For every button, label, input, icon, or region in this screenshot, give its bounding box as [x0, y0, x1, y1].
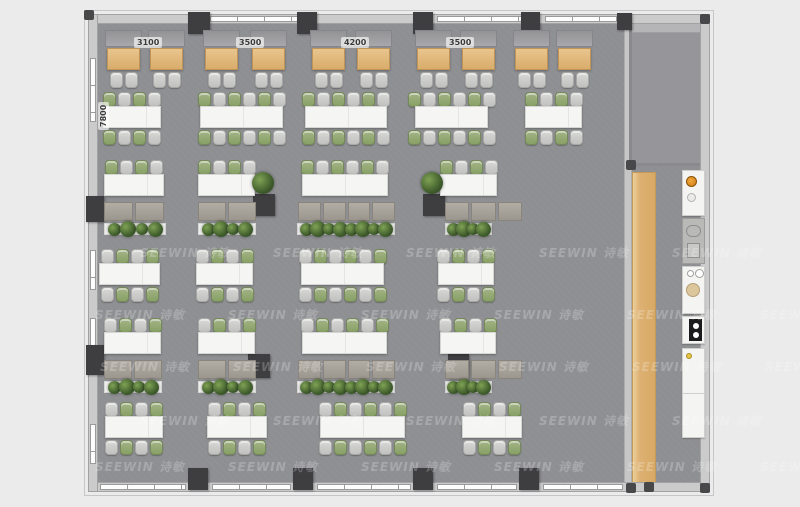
- corner-dot: [700, 483, 710, 493]
- chair: [120, 440, 133, 455]
- chair: [131, 287, 144, 302]
- chair: [103, 130, 116, 145]
- booth-table: [558, 48, 591, 70]
- chair: [243, 160, 256, 175]
- pillar: [253, 194, 275, 216]
- bar-counter: [632, 172, 656, 486]
- watermark: SEEWIN 诗敏: [95, 306, 185, 323]
- sofa-bench: [323, 360, 346, 379]
- chair: [470, 160, 483, 175]
- chair: [438, 92, 451, 107]
- booth-table: [357, 48, 390, 70]
- chair: [525, 92, 538, 107]
- chair: [394, 440, 407, 455]
- window: [437, 484, 517, 490]
- watermark: SEEWIN 诗敏: [672, 412, 762, 429]
- chair: [364, 440, 377, 455]
- watermark: SEEWIN 诗敏: [361, 306, 451, 323]
- dining-table: [440, 332, 496, 354]
- chair: [329, 287, 342, 302]
- chair: [455, 160, 468, 175]
- chair: [331, 160, 344, 175]
- pillar: [86, 196, 104, 222]
- pillar: [188, 468, 208, 490]
- watermark: SEEWIN 诗敏: [494, 458, 584, 475]
- chair: [468, 130, 481, 145]
- dining-table: [302, 332, 387, 354]
- chair: [468, 92, 481, 107]
- chair: [377, 92, 390, 107]
- sofa-bench: [348, 202, 371, 221]
- watermark: SEEWIN 诗敏: [233, 358, 323, 375]
- window: [210, 16, 298, 22]
- chair: [347, 92, 360, 107]
- dining-table: [104, 332, 161, 354]
- dining-table: [99, 263, 160, 285]
- watermark: SEEWIN 诗敏: [499, 358, 589, 375]
- chair: [483, 92, 496, 107]
- chair: [302, 130, 315, 145]
- plant-icon: [148, 222, 163, 237]
- sofa-bench: [498, 202, 522, 221]
- chair: [493, 440, 506, 455]
- watermark: SEEWIN 诗敏: [273, 244, 363, 261]
- watermark: SEEWIN 诗敏: [406, 412, 496, 429]
- corner-dot: [84, 10, 94, 20]
- cooktop-appliance: [682, 170, 705, 216]
- chair: [377, 130, 390, 145]
- window: [545, 16, 617, 22]
- plant-icon: [378, 380, 393, 395]
- chair: [374, 249, 387, 264]
- chair: [314, 287, 327, 302]
- chair: [299, 287, 312, 302]
- chair: [301, 160, 314, 175]
- chair: [302, 92, 315, 107]
- dining-table: [440, 174, 497, 196]
- booth-table: [150, 48, 183, 70]
- chair: [374, 287, 387, 302]
- chair: [120, 402, 133, 417]
- chair: [344, 287, 357, 302]
- chair: [270, 72, 283, 88]
- watermark: SEEWIN 诗敏: [406, 244, 496, 261]
- watermark: SEEWIN 诗敏: [627, 306, 717, 323]
- watermark: SEEWIN 诗敏: [140, 412, 230, 429]
- chair: [213, 160, 226, 175]
- window: [100, 484, 186, 490]
- booth-table: [205, 48, 238, 70]
- plant-icon: [144, 380, 159, 395]
- chair: [465, 72, 478, 88]
- chair: [420, 72, 433, 88]
- chair: [364, 402, 377, 417]
- pillar: [617, 13, 632, 30]
- chair: [518, 72, 531, 88]
- chair: [480, 72, 493, 88]
- watermark: SEEWIN 诗敏: [539, 244, 629, 261]
- watermark: SEEWIN 诗敏: [765, 358, 800, 375]
- chair: [376, 160, 389, 175]
- chair: [253, 402, 266, 417]
- chair: [362, 130, 375, 145]
- dining-table: [415, 106, 488, 128]
- chair: [208, 440, 221, 455]
- chair: [198, 92, 211, 107]
- chair: [273, 130, 286, 145]
- chair: [273, 92, 286, 107]
- sofa-bench: [445, 202, 469, 221]
- watermark: SEEWIN 诗敏: [760, 306, 800, 323]
- dining-table: [301, 263, 384, 285]
- chair: [135, 160, 148, 175]
- watermark: SEEWIN 诗敏: [228, 458, 318, 475]
- chair: [437, 287, 450, 302]
- watermark: SEEWIN 诗敏: [632, 358, 722, 375]
- chair: [228, 160, 241, 175]
- watermark: SEEWIN 诗敏: [100, 358, 190, 375]
- chair: [243, 130, 256, 145]
- plant-icon: [238, 222, 253, 237]
- chair: [148, 92, 161, 107]
- window: [317, 484, 411, 490]
- watermark: SEEWIN 诗敏: [366, 358, 456, 375]
- watermark: SEEWIN 诗敏: [361, 458, 451, 475]
- dining-table: [196, 263, 253, 285]
- chair: [423, 92, 436, 107]
- chair: [485, 160, 498, 175]
- watermark: SEEWIN 诗敏: [228, 306, 318, 323]
- chair: [483, 130, 496, 145]
- chair: [101, 287, 114, 302]
- meeting-room: [629, 16, 707, 166]
- chair: [331, 318, 344, 333]
- chair: [198, 160, 211, 175]
- chair: [211, 287, 224, 302]
- window: [437, 16, 522, 22]
- chair: [540, 92, 553, 107]
- chair: [118, 92, 131, 107]
- chair: [253, 440, 266, 455]
- chair: [349, 440, 362, 455]
- chair: [555, 92, 568, 107]
- chair: [228, 130, 241, 145]
- chair: [540, 130, 553, 145]
- chair: [423, 130, 436, 145]
- window: [543, 484, 623, 490]
- chair: [238, 402, 251, 417]
- watermark: SEEWIN 诗敏: [95, 458, 185, 475]
- plant-icon: [378, 222, 393, 237]
- chair: [379, 440, 392, 455]
- sofa-bench: [228, 202, 256, 221]
- dining-table: [198, 332, 255, 354]
- chair: [223, 72, 236, 88]
- dining-table: [104, 174, 164, 196]
- sofa-bench: [298, 202, 321, 221]
- chair: [452, 287, 465, 302]
- floor-plan: 31003500420035007800SEEWIN 诗敏SEEWIN 诗敏SE…: [0, 0, 800, 507]
- dimension-label: 3500: [236, 37, 264, 48]
- chair: [105, 160, 118, 175]
- plant-icon: [476, 380, 491, 395]
- chair: [478, 440, 491, 455]
- watermark: SEEWIN 诗敏: [539, 412, 629, 429]
- chair: [561, 72, 574, 88]
- corner-dot: [626, 160, 636, 170]
- chair: [258, 130, 271, 145]
- plant-icon: [238, 380, 253, 395]
- dining-table: [302, 174, 388, 196]
- chair: [332, 92, 345, 107]
- chair: [533, 72, 546, 88]
- window: [90, 250, 96, 290]
- corner-dot: [644, 482, 654, 492]
- chair: [440, 160, 453, 175]
- dimension-label: 3100: [134, 37, 162, 48]
- chair: [330, 72, 343, 88]
- chair: [375, 72, 388, 88]
- sofa-bench: [323, 202, 346, 221]
- dining-table: [438, 263, 494, 285]
- watermark: SEEWIN 诗敏: [760, 458, 800, 475]
- sofa-bench: [198, 202, 226, 221]
- chair: [213, 130, 226, 145]
- chair: [120, 160, 133, 175]
- sofa-bench: [104, 202, 133, 221]
- chair: [334, 440, 347, 455]
- chair: [196, 287, 209, 302]
- chair: [133, 130, 146, 145]
- chair: [146, 287, 159, 302]
- chair: [213, 318, 226, 333]
- booth-table: [312, 48, 345, 70]
- chair: [379, 402, 392, 417]
- chair: [463, 440, 476, 455]
- chair: [148, 130, 161, 145]
- chair: [243, 92, 256, 107]
- dining-table: [198, 174, 255, 196]
- chair: [482, 287, 495, 302]
- booth-bench: [203, 30, 240, 47]
- chair: [346, 160, 359, 175]
- dimension-label: 3500: [446, 37, 474, 48]
- watermark: SEEWIN 诗敏: [494, 306, 584, 323]
- sofa-bench: [372, 202, 395, 221]
- window: [212, 484, 291, 490]
- pillar: [423, 194, 445, 216]
- chair: [454, 318, 467, 333]
- window: [90, 58, 96, 122]
- watermark: SEEWIN 诗敏: [627, 458, 717, 475]
- chair: [238, 440, 251, 455]
- chair: [241, 287, 254, 302]
- chair: [226, 287, 239, 302]
- chair: [255, 72, 268, 88]
- chair: [316, 160, 329, 175]
- chair: [570, 92, 583, 107]
- booth-table: [515, 48, 548, 70]
- booth-table: [462, 48, 495, 70]
- potted-plant-icon: [252, 172, 274, 194]
- chair: [241, 249, 254, 264]
- dimension-label: 4200: [341, 37, 369, 48]
- chair: [525, 130, 538, 145]
- sofa-bench: [471, 202, 495, 221]
- chair: [346, 318, 359, 333]
- chair: [347, 130, 360, 145]
- booth-bench: [556, 30, 593, 47]
- chair: [153, 72, 166, 88]
- chair: [198, 318, 211, 333]
- dining-table: [525, 106, 582, 128]
- chair: [361, 160, 374, 175]
- chair: [360, 72, 373, 88]
- watermark: SEEWIN 诗敏: [672, 244, 762, 261]
- chair: [168, 72, 181, 88]
- chair: [319, 440, 332, 455]
- sofa-bench: [135, 202, 164, 221]
- corner-dot: [700, 14, 710, 24]
- chair: [135, 440, 148, 455]
- dining-table: [305, 106, 387, 128]
- chair: [438, 130, 451, 145]
- chair: [394, 402, 407, 417]
- chair: [150, 160, 163, 175]
- chair: [198, 130, 211, 145]
- chair: [508, 440, 521, 455]
- chair: [101, 249, 114, 264]
- potted-plant-icon: [421, 172, 443, 194]
- chair: [317, 130, 330, 145]
- plant-icon: [476, 222, 491, 237]
- chair: [315, 72, 328, 88]
- chair: [453, 130, 466, 145]
- chair: [116, 249, 129, 264]
- watermark: SEEWIN 诗敏: [273, 412, 363, 429]
- chair: [570, 130, 583, 145]
- chair: [362, 92, 375, 107]
- chair: [317, 92, 330, 107]
- sofa-bench: [198, 360, 226, 379]
- chair: [110, 72, 123, 88]
- chair: [105, 402, 118, 417]
- chair: [258, 92, 271, 107]
- chair: [453, 92, 466, 107]
- chair: [469, 318, 482, 333]
- booth-bench: [513, 30, 550, 47]
- booth-table: [107, 48, 140, 70]
- chair: [116, 287, 129, 302]
- corner-dot: [626, 483, 636, 493]
- chair: [408, 130, 421, 145]
- plant-icon: [136, 223, 148, 235]
- chair: [118, 130, 131, 145]
- chair: [228, 92, 241, 107]
- chair: [576, 72, 589, 88]
- dimension-label: 7800: [98, 102, 109, 130]
- chair: [408, 92, 421, 107]
- chair: [508, 402, 521, 417]
- chair: [105, 440, 118, 455]
- dining-table: [200, 106, 283, 128]
- sofa-bench: [471, 360, 495, 379]
- chair: [555, 130, 568, 145]
- booth-table: [417, 48, 450, 70]
- chair: [332, 130, 345, 145]
- chair: [435, 72, 448, 88]
- watermark: SEEWIN 诗敏: [140, 244, 230, 261]
- dining-table: [103, 106, 161, 128]
- chair: [359, 287, 372, 302]
- chair: [223, 440, 236, 455]
- chair: [150, 440, 163, 455]
- chair: [467, 287, 480, 302]
- chair: [213, 92, 226, 107]
- booth-table: [252, 48, 285, 70]
- chair: [133, 92, 146, 107]
- chair: [208, 72, 221, 88]
- chair: [125, 72, 138, 88]
